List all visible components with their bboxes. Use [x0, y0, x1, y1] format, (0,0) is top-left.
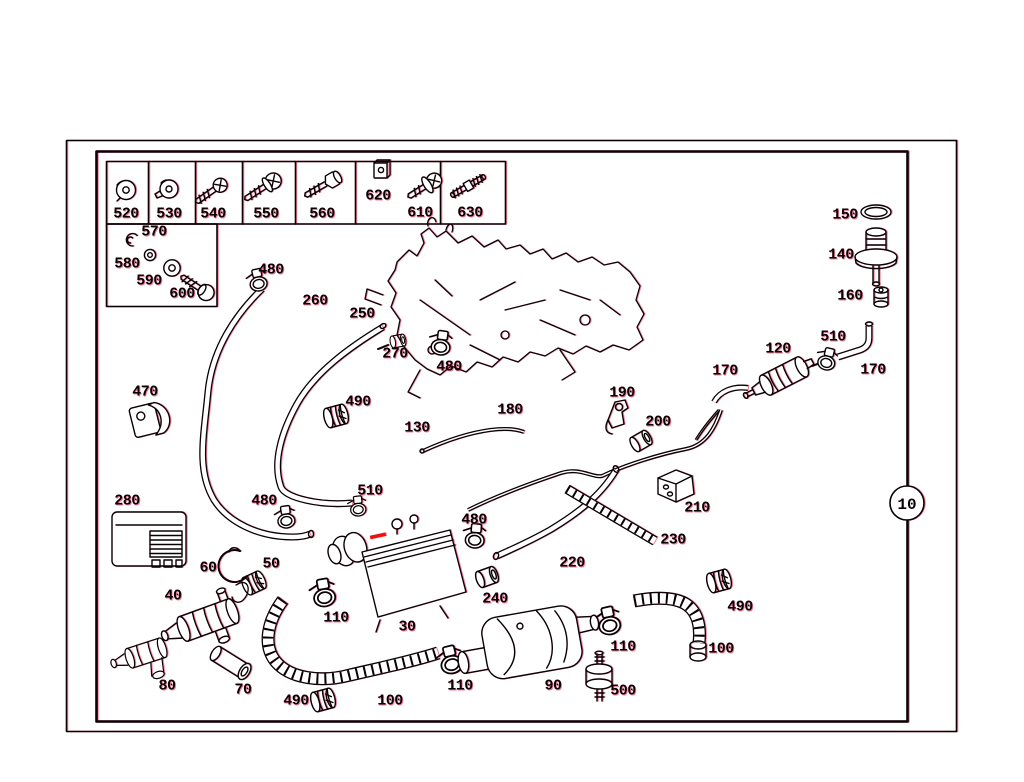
- corrugated-hose-230: [567, 489, 655, 541]
- clamp-110-1: [308, 577, 337, 608]
- seal-150: [861, 205, 891, 219]
- clip-60: [218, 548, 247, 582]
- engine-sketch: [365, 218, 644, 398]
- valve-80: [108, 637, 174, 691]
- icon-screw-540: [192, 176, 230, 209]
- hose-100-right-collar: [690, 641, 706, 661]
- grommet-160: [874, 287, 888, 307]
- elbow-170-end: [866, 322, 873, 326]
- grommet-490-bottom-right: [705, 568, 733, 594]
- icon-bolt-560: [301, 169, 344, 202]
- clamp-480-3: [273, 505, 296, 530]
- pump-40: [153, 583, 248, 663]
- parts-diagram: 10: [0, 0, 1024, 782]
- grommet-490-bottom-left: [309, 687, 337, 713]
- icon-bolt-600: [177, 269, 218, 303]
- control-unit-280: [112, 512, 186, 567]
- clamp-480-1: [245, 267, 269, 293]
- muffler-90: [452, 600, 606, 686]
- page: 10 5205305405505606206106305705805906004…: [0, 0, 1024, 782]
- red-highlight-mark: [370, 532, 386, 539]
- hose-70: [208, 644, 254, 682]
- regulator-140: [855, 228, 897, 286]
- mount-500: [586, 651, 612, 701]
- icon-screw-610: [403, 169, 445, 205]
- icon-nut-520: [117, 181, 136, 202]
- clamp-480-4: [462, 523, 486, 549]
- heater-unit-30: [324, 515, 466, 632]
- callout-10-label: 10: [897, 496, 916, 514]
- icon-washer-580: [144, 249, 155, 260]
- fuel-filter-120: [739, 352, 818, 407]
- clamp-510-1: [814, 346, 839, 372]
- bushing-240: [474, 565, 500, 588]
- bushing-200: [628, 429, 654, 453]
- pipe-130-end: [420, 449, 424, 453]
- bracket-470: [129, 400, 173, 440]
- block-210: [658, 470, 694, 502]
- icon-nut-530: [155, 180, 178, 198]
- icon-screw-550: [240, 170, 284, 206]
- pipe-130: [423, 429, 524, 451]
- fitting-270-pin: [378, 345, 388, 349]
- corrugated-hose-100-left: [268, 600, 438, 679]
- grommet-490-top: [322, 403, 350, 429]
- icon-ring-570: [126, 234, 137, 246]
- icon-clip-620: [374, 160, 390, 178]
- icon-washer-590: [164, 260, 180, 276]
- clamp-480-2: [427, 329, 452, 356]
- bracket-190: [606, 400, 628, 434]
- hose-250-end: [379, 323, 386, 330]
- icon-stud-630: [449, 172, 487, 199]
